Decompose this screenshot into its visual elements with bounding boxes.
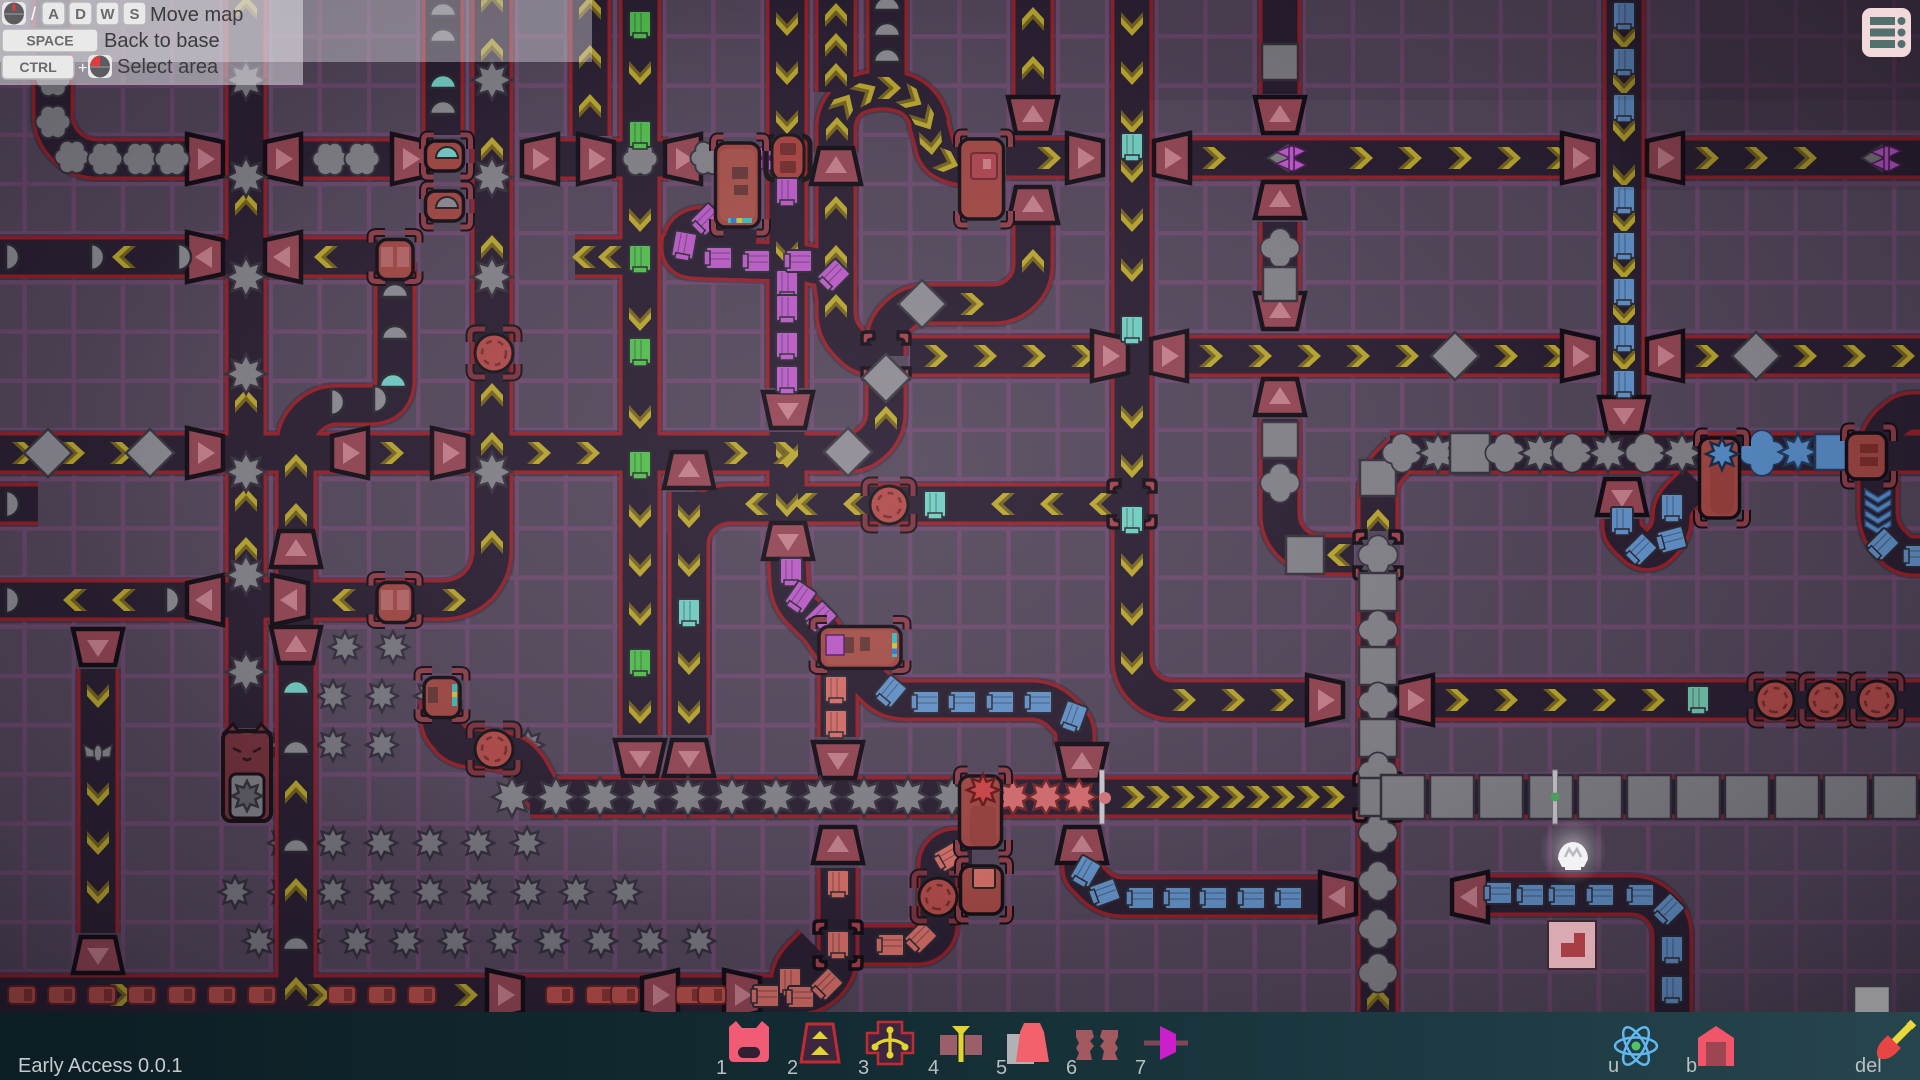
- svg-text:1: 1: [716, 1057, 727, 1079]
- svg-text:Early Access 0.0.1: Early Access 0.0.1: [18, 1055, 183, 1077]
- svg-text:6: 6: [1066, 1057, 1077, 1079]
- svg-text:Back to base: Back to base: [104, 30, 220, 52]
- svg-text:u: u: [1608, 1055, 1619, 1077]
- svg-text:3: 3: [858, 1057, 869, 1079]
- svg-text:7: 7: [1135, 1057, 1146, 1079]
- svg-text:4: 4: [928, 1057, 939, 1079]
- svg-text:S: S: [129, 6, 139, 23]
- svg-text:2: 2: [787, 1057, 798, 1079]
- svg-text:5: 5: [996, 1057, 1007, 1079]
- svg-text:Move map: Move map: [150, 4, 243, 26]
- svg-text:+: +: [78, 60, 87, 77]
- svg-text:del: del: [1855, 1055, 1882, 1077]
- svg-text:W: W: [100, 6, 115, 23]
- svg-text:/: /: [31, 4, 36, 24]
- svg-text:D: D: [75, 6, 86, 23]
- svg-text:b: b: [1686, 1055, 1697, 1077]
- svg-text:CTRL: CTRL: [19, 59, 57, 75]
- svg-text:SPACE: SPACE: [26, 33, 73, 49]
- svg-text:Select area: Select area: [117, 56, 219, 78]
- svg-text:A: A: [48, 6, 59, 23]
